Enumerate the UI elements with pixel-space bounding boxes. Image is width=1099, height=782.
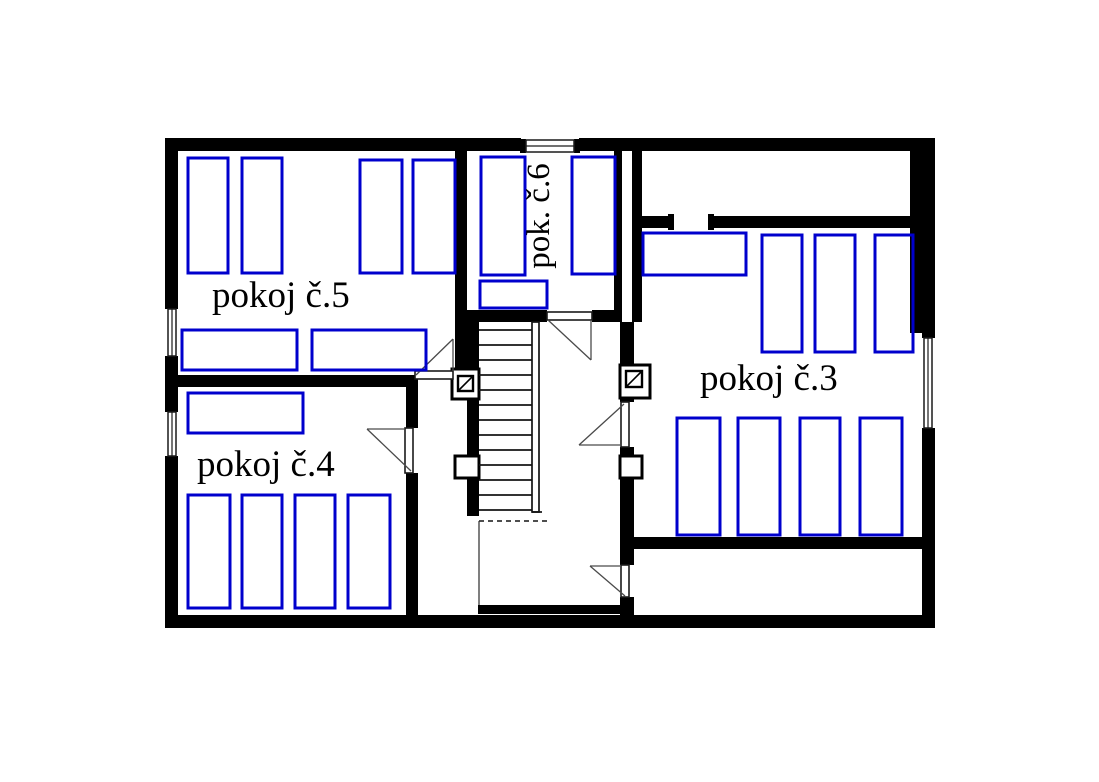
window-left-room5 [165, 305, 178, 360]
bed-rect [182, 330, 297, 370]
room5-label: pokoj č.5 [212, 275, 350, 316]
outer-wall-right-a [922, 138, 935, 338]
bed-rect [413, 160, 455, 273]
niche-left-lower [455, 456, 479, 478]
stair-handrail [532, 322, 539, 512]
bed-rect [643, 233, 746, 275]
door-corridor-south-space [590, 565, 629, 597]
wall-room5-room4 [165, 375, 415, 387]
bed-rect [572, 157, 615, 274]
wall-room4-right-a [406, 375, 418, 428]
wall-hall-right-c [620, 597, 634, 615]
wall-corridor-bottom [478, 605, 620, 614]
bed-rect [738, 418, 780, 535]
room-labels: pokoj č.5 pokoj č.4 pokoj č.3 pok. č.6 [197, 163, 838, 485]
outer-wall-top-left [165, 138, 521, 151]
bed-rect [360, 160, 402, 273]
wall-room5-right [455, 138, 467, 387]
bed-rect [188, 495, 230, 608]
window-left-room4 [165, 408, 178, 460]
wall-room6-bottom-b [592, 310, 622, 322]
wall-room4-right-b [406, 473, 418, 616]
wall-topspace-bottom-b [708, 216, 923, 228]
wall-opening-cap-b [708, 214, 714, 230]
wall-opening-cap-a [668, 214, 674, 230]
bed-rect [295, 495, 335, 608]
bed-rect [677, 418, 720, 535]
room6-label: pok. č.6 [521, 163, 557, 268]
wall-topspace-bottom-a [632, 216, 673, 228]
bed-rect [480, 281, 547, 308]
door-room6 [547, 312, 592, 360]
wall-topspace-left [632, 150, 642, 322]
outer-wall-left-a [165, 138, 178, 308]
niche-right-lower [620, 456, 642, 478]
staircase [479, 322, 549, 605]
door-room4 [367, 428, 413, 473]
bed-rect [800, 418, 840, 535]
door-room3 [579, 402, 629, 447]
outer-wall-bottom [165, 615, 935, 628]
bed-rect [188, 158, 228, 273]
bed-rect [481, 157, 525, 275]
bed-rect [875, 235, 913, 352]
outer-wall-right-b [922, 430, 935, 628]
bed-rect [188, 393, 303, 433]
bed-rect [312, 330, 426, 370]
wall-room3-bottom [620, 537, 923, 549]
wall-room6-bottom-a [455, 310, 547, 322]
furniture-room4 [188, 393, 390, 608]
bed-rect [860, 418, 902, 535]
room3-label: pokoj č.3 [700, 358, 838, 399]
outer-wall-left-c [165, 458, 178, 628]
bed-rect [762, 235, 802, 352]
furniture-room5 [182, 158, 455, 370]
floor-plan-page: pokoj č.5 pokoj č.4 pokoj č.3 pok. č.6 [0, 0, 1099, 782]
floor-plan-drawing: pokoj č.5 pokoj č.4 pokoj č.3 pok. č.6 [0, 0, 1099, 782]
room4-label: pokoj č.4 [197, 444, 335, 485]
door-room5 [415, 339, 453, 379]
wall-stair-left [467, 310, 479, 516]
window-right-room3 [922, 334, 935, 432]
window-top-room6 [520, 139, 580, 153]
bed-rect [348, 495, 390, 608]
bed-rect [242, 495, 282, 608]
bed-rect [815, 235, 855, 352]
outer-wall-top-right [579, 138, 935, 151]
bed-rect [242, 158, 282, 273]
